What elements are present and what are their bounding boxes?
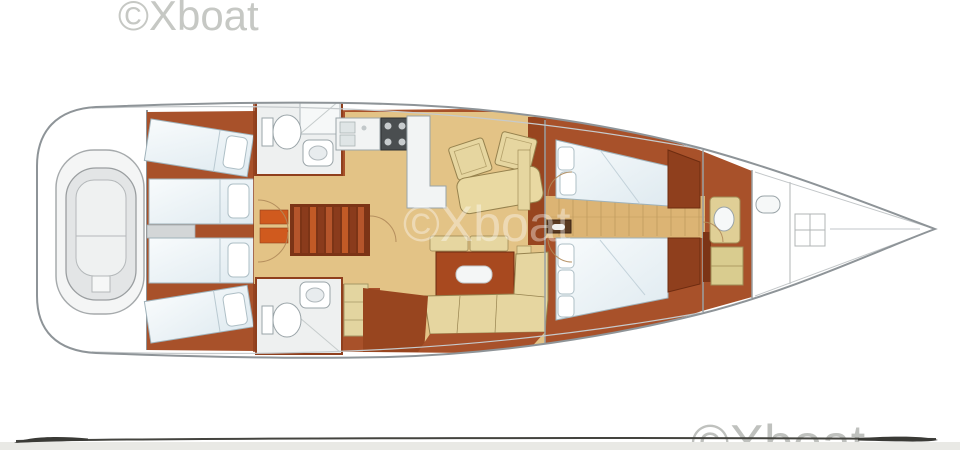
dinghy xyxy=(66,168,136,300)
engine-space xyxy=(147,225,195,238)
toilet-bowl xyxy=(273,303,301,337)
wardrobe xyxy=(668,238,700,292)
head-top xyxy=(256,98,342,175)
nav-cabinet xyxy=(363,288,428,352)
watermark-center: ©Xboat xyxy=(403,196,571,252)
toilet-tank xyxy=(262,306,273,334)
watermark-top: ©Xboat xyxy=(118,0,259,39)
bottom-strip xyxy=(0,442,960,450)
bow-hatch xyxy=(756,196,780,213)
boat-floorplan-page: ©Xboat ©Xboat ©Xboat xyxy=(0,0,960,450)
toilet-bowl xyxy=(273,115,301,149)
floorplan-svg: ©Xboat ©Xboat ©Xboat xyxy=(0,0,960,450)
stove xyxy=(381,118,409,150)
toilet-tank xyxy=(262,118,273,146)
bottom-line-right-taper xyxy=(858,437,938,442)
